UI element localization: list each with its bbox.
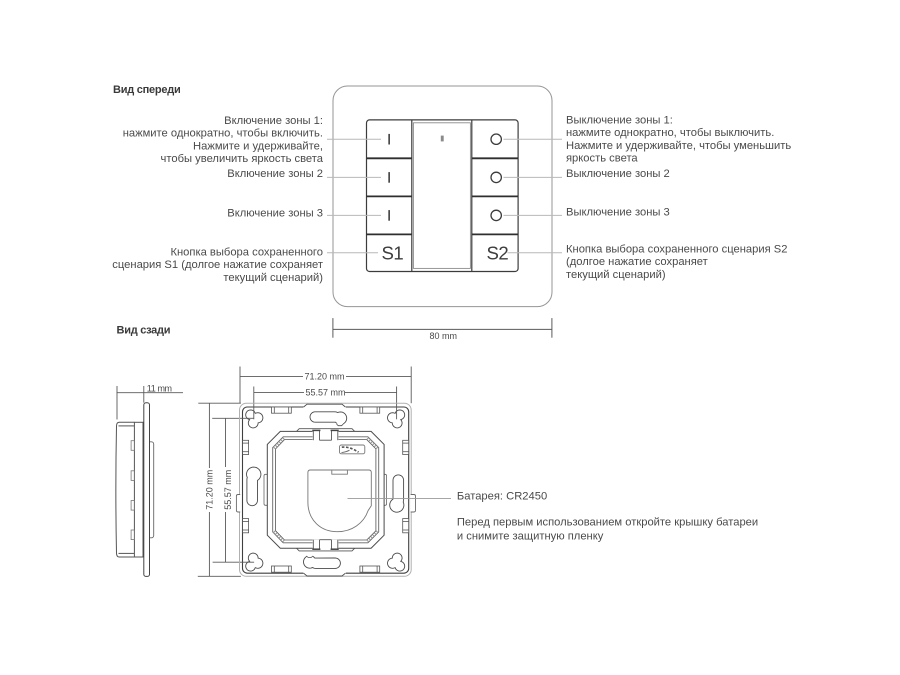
svg-text:S1: S1 <box>382 242 404 263</box>
svg-text:80 mm: 80 mm <box>430 331 458 341</box>
svg-text:Включение зоны 2: Включение зоны 2 <box>227 168 323 180</box>
svg-text:Кнопка выбора сохраненного сце: Кнопка выбора сохраненного сценария S2 <box>566 243 787 255</box>
svg-text:Перед первым использованием от: Перед первым использованием откройте кры… <box>457 517 758 529</box>
svg-text:71.20 mm: 71.20 mm <box>305 372 345 382</box>
svg-text:Включение зоны 1:: Включение зоны 1: <box>224 115 323 127</box>
svg-text:яркость света: яркость света <box>566 153 638 165</box>
svg-text:сценария S1 (долгое нажатие со: сценария S1 (долгое нажатие сохраняет <box>112 259 323 271</box>
svg-text:Нажмите и удерживайте,: Нажмите и удерживайте, <box>193 140 323 152</box>
svg-text:71.20 mm: 71.20 mm <box>205 470 215 510</box>
svg-text:чтобы увеличить яркость света: чтобы увеличить яркость света <box>161 153 324 165</box>
svg-text:и снимите защитную пленку: и снимите защитную пленку <box>457 530 604 542</box>
svg-text:текущий сценарий): текущий сценарий) <box>566 269 666 281</box>
svg-text:Нажмите и удерживайте, чтобы у: Нажмите и удерживайте, чтобы уменьшить <box>566 140 791 152</box>
svg-text:55.57 mm: 55.57 mm <box>306 388 346 398</box>
svg-text:Кнопка выбора сохраненного: Кнопка выбора сохраненного <box>170 246 323 258</box>
svg-text:Выключение зоны 1:: Выключение зоны 1: <box>566 115 673 127</box>
svg-text:(долгое нажатие сохраняет: (долгое нажатие сохраняет <box>566 256 708 268</box>
svg-text:Выключение зоны 2: Выключение зоны 2 <box>566 168 670 180</box>
svg-text:Выключение зоны 3: Выключение зоны 3 <box>566 207 670 219</box>
svg-text:Включение зоны 3: Включение зоны 3 <box>227 208 323 220</box>
svg-text:Вид сзади: Вид сзади <box>117 325 171 337</box>
svg-text:нажмите однократно, чтобы вклю: нажмите однократно, чтобы включить. <box>123 128 323 140</box>
svg-text:S2: S2 <box>487 242 509 263</box>
svg-text:11 mm: 11 mm <box>147 383 172 393</box>
svg-text:текущий сценарий): текущий сценарий) <box>223 272 323 284</box>
svg-text:Батарея: CR2450: Батарея: CR2450 <box>457 490 547 502</box>
svg-text:55.57 mm: 55.57 mm <box>223 470 233 510</box>
svg-text:нажмите однократно, чтобы выкл: нажмите однократно, чтобы выключить. <box>566 127 774 139</box>
svg-text:Вид спереди: Вид спереди <box>113 84 180 96</box>
